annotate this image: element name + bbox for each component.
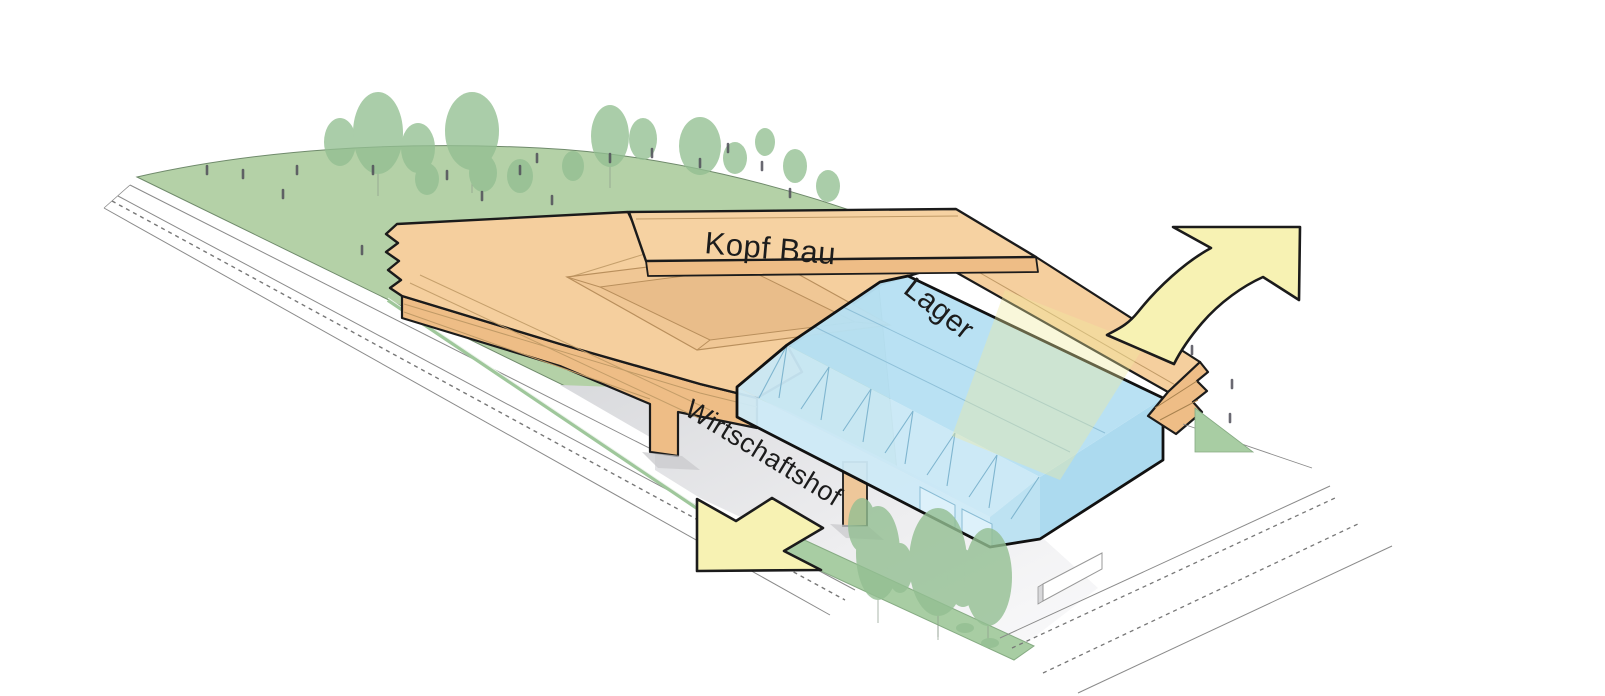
flow-arrow-northeast [1107,227,1300,364]
axonometric-drawing: Kopf Bau Lager Wirtschaftshof [0,0,1605,696]
east-green-patch [1195,408,1253,452]
site-diagram-canvas: Kopf Bau Lager Wirtschaftshof [0,0,1605,696]
